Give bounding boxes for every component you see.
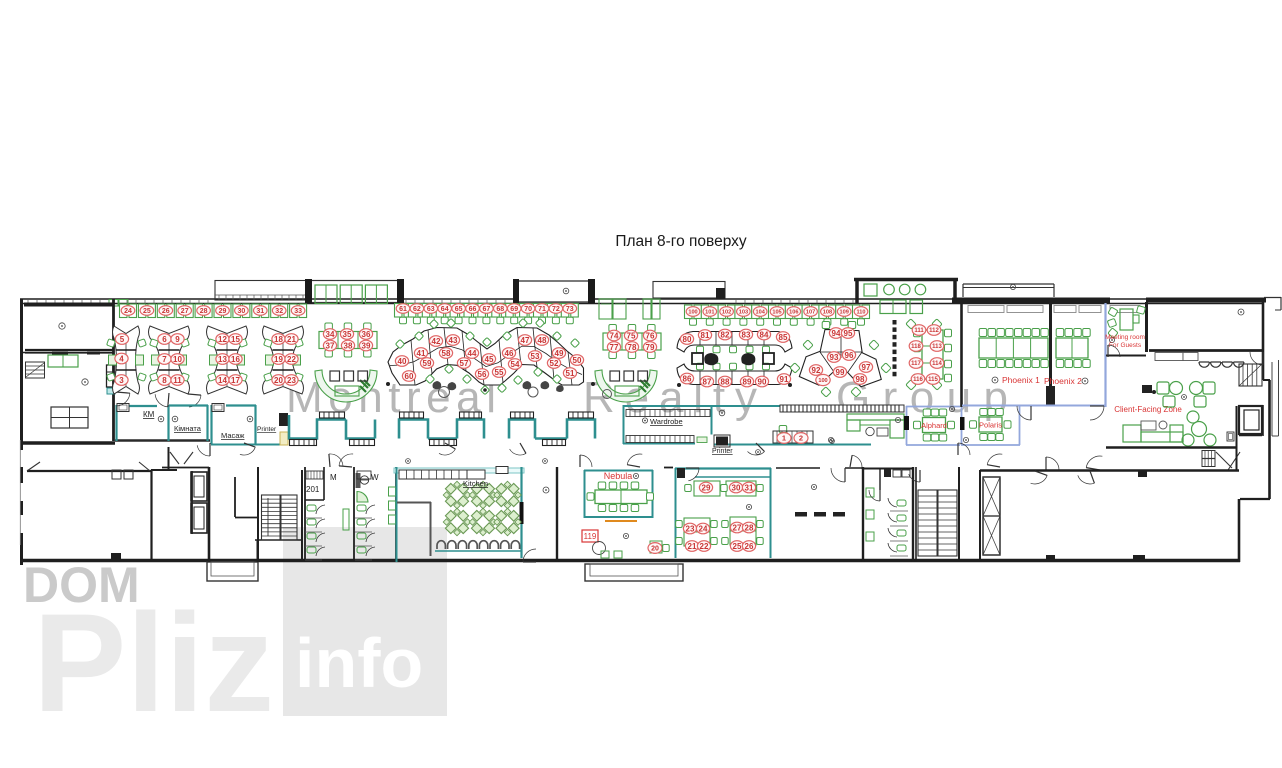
- svg-text:108: 108: [823, 310, 832, 316]
- svg-text:28: 28: [745, 523, 754, 532]
- svg-text:31: 31: [256, 308, 264, 315]
- svg-text:77: 77: [610, 343, 619, 352]
- svg-text:20: 20: [274, 376, 283, 385]
- svg-text:28: 28: [200, 308, 208, 315]
- svg-text:26: 26: [162, 308, 170, 315]
- svg-text:94: 94: [832, 329, 841, 338]
- svg-text:80: 80: [683, 335, 692, 344]
- svg-text:58: 58: [442, 349, 451, 358]
- svg-text:11: 11: [173, 376, 182, 385]
- svg-text:74: 74: [610, 331, 619, 340]
- svg-text:29: 29: [219, 308, 227, 315]
- svg-text:61: 61: [399, 306, 407, 313]
- svg-text:18: 18: [274, 335, 283, 344]
- svg-text:Meeting room: Meeting room: [1105, 334, 1145, 341]
- svg-text:Printer: Printer: [712, 448, 733, 455]
- svg-text:84: 84: [760, 330, 769, 339]
- svg-text:96: 96: [845, 351, 854, 360]
- svg-text:35: 35: [343, 330, 352, 339]
- svg-text:104: 104: [756, 310, 766, 316]
- svg-text:24: 24: [699, 524, 708, 533]
- svg-text:106: 106: [789, 310, 798, 316]
- svg-text:22: 22: [287, 355, 296, 364]
- svg-text:111: 111: [914, 328, 924, 334]
- svg-text:Nebula: Nebula: [604, 471, 633, 481]
- svg-text:105: 105: [772, 310, 781, 316]
- svg-text:91: 91: [780, 375, 789, 384]
- svg-text:93: 93: [830, 353, 839, 362]
- svg-text:7: 7: [162, 355, 167, 364]
- svg-text:115: 115: [928, 377, 938, 383]
- svg-text:97: 97: [862, 363, 871, 372]
- svg-text:13: 13: [218, 355, 227, 364]
- svg-text:66: 66: [469, 306, 477, 313]
- svg-text:20: 20: [651, 546, 659, 553]
- svg-text:41: 41: [417, 349, 426, 358]
- svg-text:101: 101: [705, 310, 714, 316]
- svg-text:19: 19: [274, 355, 283, 364]
- svg-text:90: 90: [758, 377, 767, 386]
- svg-text:31: 31: [745, 483, 754, 492]
- svg-text:60: 60: [405, 372, 414, 381]
- svg-text:55: 55: [495, 368, 504, 377]
- svg-text:6: 6: [162, 335, 167, 344]
- svg-text:87: 87: [703, 377, 712, 386]
- svg-text:23: 23: [287, 376, 296, 385]
- svg-text:46: 46: [505, 349, 514, 358]
- svg-text:81: 81: [701, 331, 710, 340]
- svg-text:78: 78: [628, 343, 637, 352]
- svg-text:62: 62: [413, 306, 421, 313]
- svg-text:201: 201: [306, 485, 320, 494]
- svg-text:25: 25: [143, 308, 151, 315]
- svg-text:22: 22: [700, 542, 709, 551]
- svg-text:109: 109: [840, 310, 849, 316]
- svg-text:99: 99: [836, 368, 845, 377]
- svg-text:63: 63: [427, 306, 435, 313]
- svg-text:DOM: DOM: [23, 557, 140, 613]
- svg-text:Polaris: Polaris: [979, 421, 1002, 430]
- svg-text:Phoenix 1: Phoenix 1: [1002, 375, 1040, 385]
- svg-text:Printer: Printer: [257, 426, 277, 433]
- svg-text:116: 116: [913, 377, 923, 383]
- svg-text:71: 71: [538, 306, 546, 313]
- svg-text:5: 5: [120, 335, 125, 344]
- svg-text:76: 76: [646, 331, 655, 340]
- svg-text:32: 32: [275, 308, 283, 315]
- svg-text:100: 100: [818, 378, 827, 384]
- svg-text:38: 38: [344, 341, 353, 350]
- svg-text:Kitchen: Kitchen: [463, 479, 488, 488]
- svg-text:69: 69: [510, 306, 518, 313]
- svg-text:65: 65: [455, 306, 463, 313]
- svg-text:План 8-го поверху: План 8-го поверху: [615, 233, 747, 250]
- svg-text:16: 16: [231, 355, 240, 364]
- svg-text:68: 68: [496, 306, 504, 313]
- svg-text:53: 53: [531, 352, 540, 361]
- svg-text:1: 1: [782, 434, 786, 443]
- svg-text:119: 119: [584, 532, 597, 541]
- svg-text:107: 107: [806, 310, 815, 316]
- svg-text:64: 64: [441, 306, 449, 313]
- svg-text:100: 100: [688, 310, 697, 316]
- svg-text:4: 4: [119, 354, 124, 363]
- svg-text:Client-Facing Zone: Client-Facing Zone: [1114, 405, 1182, 414]
- svg-text:118: 118: [911, 344, 921, 350]
- svg-text:114: 114: [932, 361, 942, 367]
- svg-text:info: info: [295, 624, 423, 702]
- svg-text:37: 37: [326, 341, 335, 350]
- svg-text:9: 9: [175, 335, 180, 344]
- svg-text:3: 3: [119, 376, 124, 385]
- svg-text:30: 30: [732, 483, 741, 492]
- svg-text:Wardrobe: Wardrobe: [650, 417, 683, 426]
- svg-text:27: 27: [181, 308, 189, 315]
- svg-text:Phoenix 2: Phoenix 2: [1044, 376, 1082, 386]
- svg-text:For Guests: For Guests: [1109, 342, 1142, 349]
- svg-text:29: 29: [702, 483, 711, 492]
- svg-text:Alphard: Alphard: [921, 421, 947, 430]
- svg-text:M: M: [330, 473, 337, 482]
- svg-text:112: 112: [929, 328, 939, 334]
- svg-text:83: 83: [742, 330, 751, 339]
- svg-text:8: 8: [162, 376, 167, 385]
- svg-text:48: 48: [538, 336, 547, 345]
- svg-text:113: 113: [932, 344, 942, 350]
- svg-text:21: 21: [688, 542, 697, 551]
- svg-text:103: 103: [739, 310, 748, 316]
- svg-text:49: 49: [555, 349, 564, 358]
- svg-text:92: 92: [812, 366, 821, 375]
- svg-text:95: 95: [844, 329, 853, 338]
- svg-text:23: 23: [686, 524, 695, 533]
- svg-text:39: 39: [362, 341, 371, 350]
- svg-text:14: 14: [218, 376, 227, 385]
- svg-text:10: 10: [173, 355, 182, 364]
- svg-text:79: 79: [646, 343, 655, 352]
- svg-text:98: 98: [856, 375, 865, 384]
- svg-text:2: 2: [799, 434, 803, 443]
- svg-text:117: 117: [911, 361, 921, 367]
- svg-text:82: 82: [721, 330, 730, 339]
- svg-text:47: 47: [521, 336, 530, 345]
- svg-text:21: 21: [287, 335, 296, 344]
- svg-text:75: 75: [627, 331, 636, 340]
- svg-text:15: 15: [231, 335, 240, 344]
- svg-text:57: 57: [460, 359, 469, 368]
- svg-text:51: 51: [566, 369, 575, 378]
- svg-text:12: 12: [218, 335, 227, 344]
- svg-text:30: 30: [238, 308, 246, 315]
- svg-text:45: 45: [485, 355, 494, 364]
- svg-text:72: 72: [552, 306, 560, 313]
- svg-text:102: 102: [722, 310, 731, 316]
- svg-text:54: 54: [511, 360, 520, 369]
- svg-text:70: 70: [524, 306, 532, 313]
- svg-text:44: 44: [468, 349, 477, 358]
- svg-text:42: 42: [432, 337, 441, 346]
- svg-text:56: 56: [478, 370, 487, 379]
- svg-text:43: 43: [449, 336, 458, 345]
- svg-text:Кімната: Кімната: [174, 424, 202, 433]
- svg-text:50: 50: [573, 356, 582, 365]
- svg-text:85: 85: [779, 333, 788, 342]
- svg-text:52: 52: [550, 359, 559, 368]
- svg-text:24: 24: [124, 308, 132, 315]
- svg-text:59: 59: [423, 359, 432, 368]
- svg-text:88: 88: [721, 377, 730, 386]
- svg-text:33: 33: [294, 308, 302, 315]
- svg-text:27: 27: [733, 523, 742, 532]
- svg-text:40: 40: [398, 357, 407, 366]
- svg-text:86: 86: [683, 374, 692, 383]
- svg-text:17: 17: [231, 376, 240, 385]
- svg-text:25: 25: [733, 542, 742, 551]
- svg-text:W: W: [371, 473, 379, 482]
- svg-text:26: 26: [745, 542, 754, 551]
- svg-text:36: 36: [362, 330, 371, 339]
- svg-text:Масаж: Масаж: [221, 431, 244, 440]
- svg-text:34: 34: [326, 330, 335, 339]
- svg-text:КМ: КМ: [143, 410, 155, 419]
- svg-text:89: 89: [743, 377, 752, 386]
- svg-text:110: 110: [856, 310, 865, 316]
- svg-text:67: 67: [483, 306, 491, 313]
- svg-text:73: 73: [566, 306, 574, 313]
